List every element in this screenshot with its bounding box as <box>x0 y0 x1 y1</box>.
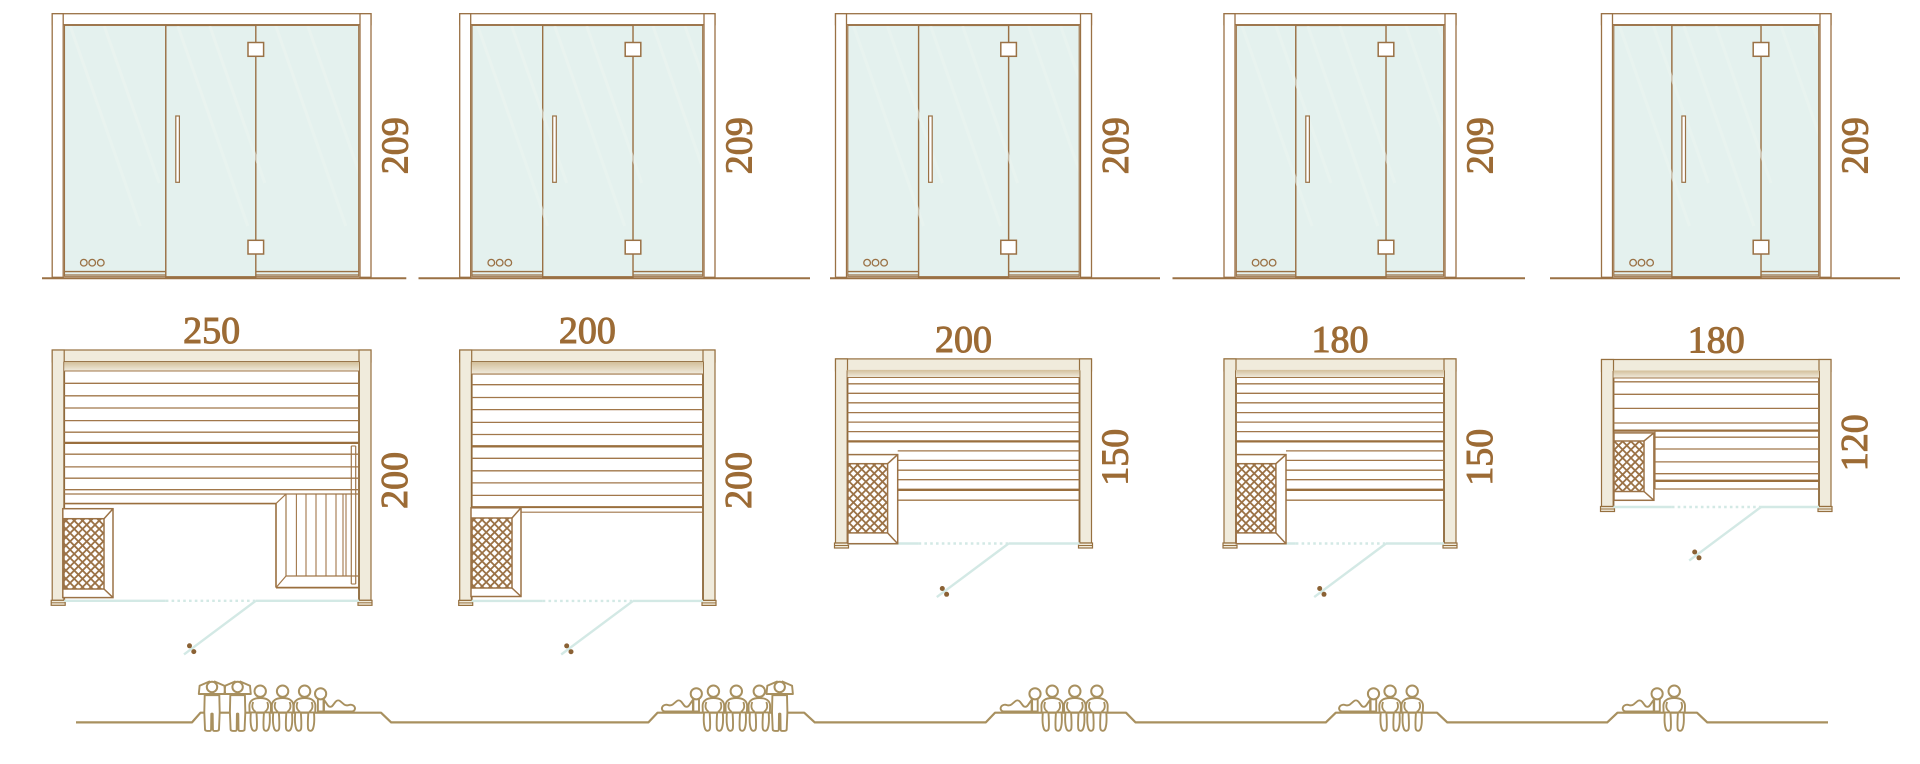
svg-text:180: 180 <box>1312 319 1369 361</box>
svg-text:120: 120 <box>1834 414 1876 471</box>
svg-text:200: 200 <box>374 452 416 509</box>
svg-text:209: 209 <box>1460 117 1502 174</box>
svg-text:200: 200 <box>718 452 760 509</box>
svg-text:150: 150 <box>1459 429 1501 486</box>
svg-text:200: 200 <box>935 319 992 361</box>
svg-text:209: 209 <box>375 117 417 174</box>
svg-text:209: 209 <box>719 117 761 174</box>
svg-text:209: 209 <box>1095 117 1137 174</box>
svg-text:200: 200 <box>559 310 616 352</box>
svg-text:180: 180 <box>1688 320 1745 362</box>
svg-text:250: 250 <box>183 310 240 352</box>
svg-text:209: 209 <box>1835 117 1877 174</box>
svg-text:150: 150 <box>1095 429 1137 486</box>
